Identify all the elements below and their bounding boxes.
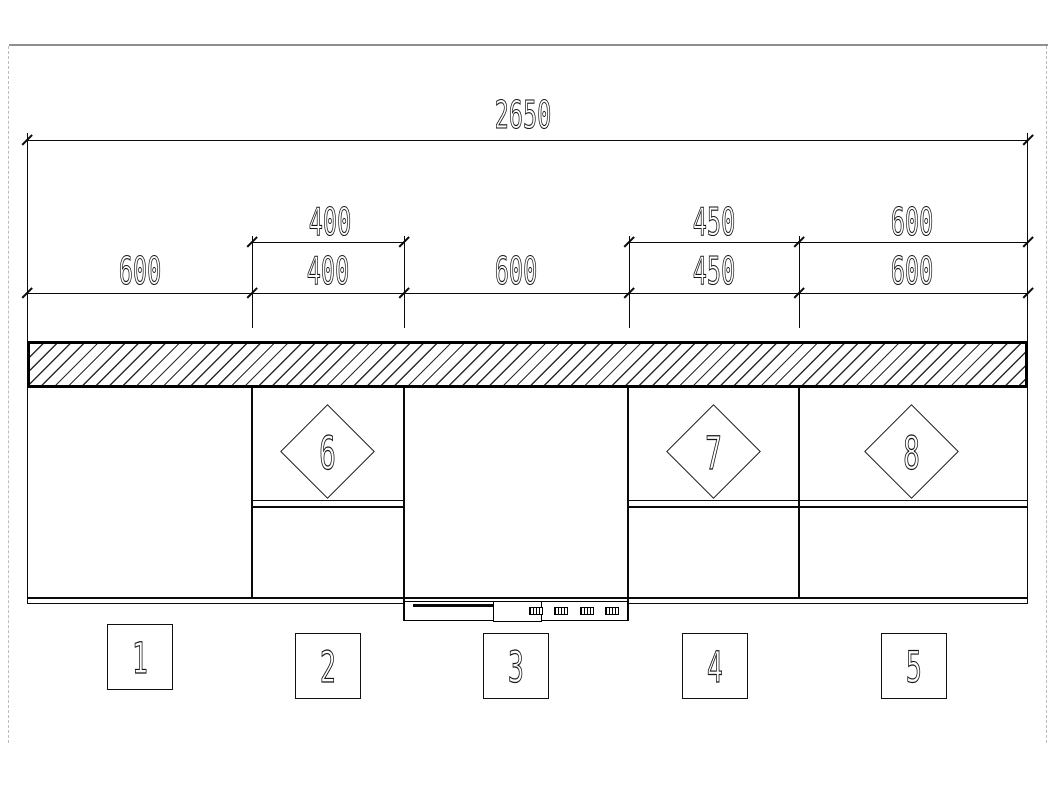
range-knob <box>554 607 568 615</box>
dim-line-overall <box>27 140 1028 141</box>
square-marker-3: 3 <box>483 633 549 699</box>
drawer-line <box>628 506 1027 508</box>
paper-edge-top <box>9 44 1048 46</box>
dim-line-tier2-left <box>252 242 404 243</box>
diamond-label: 6 <box>319 427 336 476</box>
diamond-marker-7: 7 <box>666 404 761 499</box>
dim-label-tier2-450: 450 <box>677 203 751 241</box>
diamond-marker-8: 8 <box>864 404 959 499</box>
dim-label-tier2-600: 600 <box>875 203 949 241</box>
cabinet-divider <box>251 388 253 598</box>
extension-line <box>629 236 630 328</box>
cabinet-divider <box>627 388 629 621</box>
square-marker-5: 5 <box>881 633 947 699</box>
diamond-label: 7 <box>705 427 722 476</box>
extension-line <box>252 236 253 328</box>
dim-label-tier2-400: 400 <box>293 203 367 241</box>
drawer-line <box>628 500 1027 501</box>
square-marker-2: 2 <box>295 633 361 699</box>
square-marker-1: 1 <box>107 624 173 690</box>
cabinet-divider <box>798 388 800 598</box>
dim-label-seg1: 600 <box>103 252 177 290</box>
hatched-section-bar <box>27 341 1028 388</box>
diamond-marker-6: 6 <box>280 404 375 499</box>
diamond-label: 8 <box>903 427 920 476</box>
paper-edge-left <box>8 46 9 743</box>
range-knob <box>529 607 543 615</box>
square-label: 4 <box>707 642 723 690</box>
extension-line <box>799 236 800 328</box>
square-marker-4: 4 <box>682 633 748 699</box>
dim-label-seg3: 600 <box>479 252 553 290</box>
dim-label-seg5: 600 <box>875 252 949 290</box>
range-knob <box>580 607 594 615</box>
square-label: 2 <box>320 642 336 690</box>
dim-line-tier3 <box>27 293 1028 294</box>
drawer-line <box>252 500 404 501</box>
cabinet-divider <box>403 388 405 621</box>
range-knob <box>605 607 619 615</box>
square-label: 3 <box>508 642 524 690</box>
dim-label-seg2: 400 <box>291 252 365 290</box>
paper-edge-right <box>1046 46 1047 743</box>
dim-label-overall: 2650 <box>486 96 560 134</box>
extension-line <box>404 236 405 328</box>
dim-line-tier2-right <box>629 242 1028 243</box>
drawer-line <box>252 506 404 508</box>
square-label: 5 <box>906 642 922 690</box>
dim-label-seg4: 450 <box>677 252 751 290</box>
square-label: 1 <box>132 633 148 681</box>
cabinet-bottom-line <box>27 597 1027 599</box>
